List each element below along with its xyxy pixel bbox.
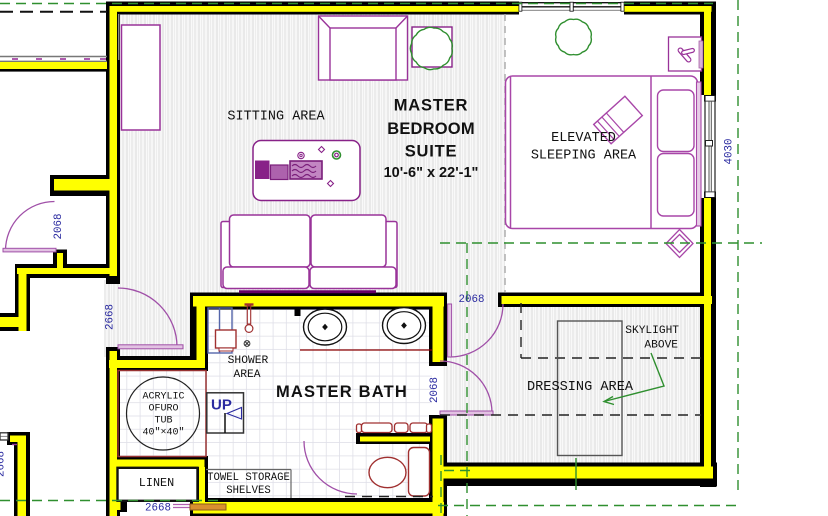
svg-text:SLEEPING AREA: SLEEPING AREA [531, 149, 637, 164]
svg-text:SUITE: SUITE [405, 143, 458, 161]
svg-text:2668: 2668 [105, 304, 117, 330]
svg-text:AREA: AREA [233, 369, 260, 381]
svg-text:OFURO: OFURO [148, 404, 178, 415]
svg-text:ABOVE: ABOVE [644, 340, 678, 352]
svg-text:LINEN: LINEN [139, 476, 174, 490]
svg-text:MASTER BATH: MASTER BATH [276, 383, 408, 401]
svg-text:DRESSING AREA: DRESSING AREA [527, 380, 634, 395]
svg-text:2668: 2668 [0, 451, 8, 477]
svg-text:2668: 2668 [145, 503, 171, 515]
svg-text:ELEVATED: ELEVATED [551, 131, 616, 146]
svg-text:2068: 2068 [429, 377, 441, 403]
svg-text:2068: 2068 [459, 294, 485, 306]
svg-text:TOWEL STORAGE: TOWEL STORAGE [207, 472, 290, 484]
svg-text:UP: UP [211, 397, 232, 414]
svg-text:SHOWER: SHOWER [228, 355, 269, 367]
svg-text:MASTER: MASTER [394, 97, 468, 115]
svg-text:SKYLIGHT: SKYLIGHT [625, 325, 679, 337]
svg-text:4030: 4030 [724, 139, 736, 165]
svg-text:2068: 2068 [53, 214, 65, 240]
svg-text:BEDROOM: BEDROOM [387, 120, 475, 138]
svg-text:SITTING AREA: SITTING AREA [227, 110, 325, 125]
svg-text:TUB: TUB [154, 416, 172, 427]
svg-text:SHELVES: SHELVES [226, 485, 271, 497]
svg-text:40"×40": 40"×40" [142, 427, 184, 439]
svg-text:ACRYLIC: ACRYLIC [142, 392, 184, 403]
svg-text:10'-6" x 22'-1": 10'-6" x 22'-1" [384, 165, 479, 181]
